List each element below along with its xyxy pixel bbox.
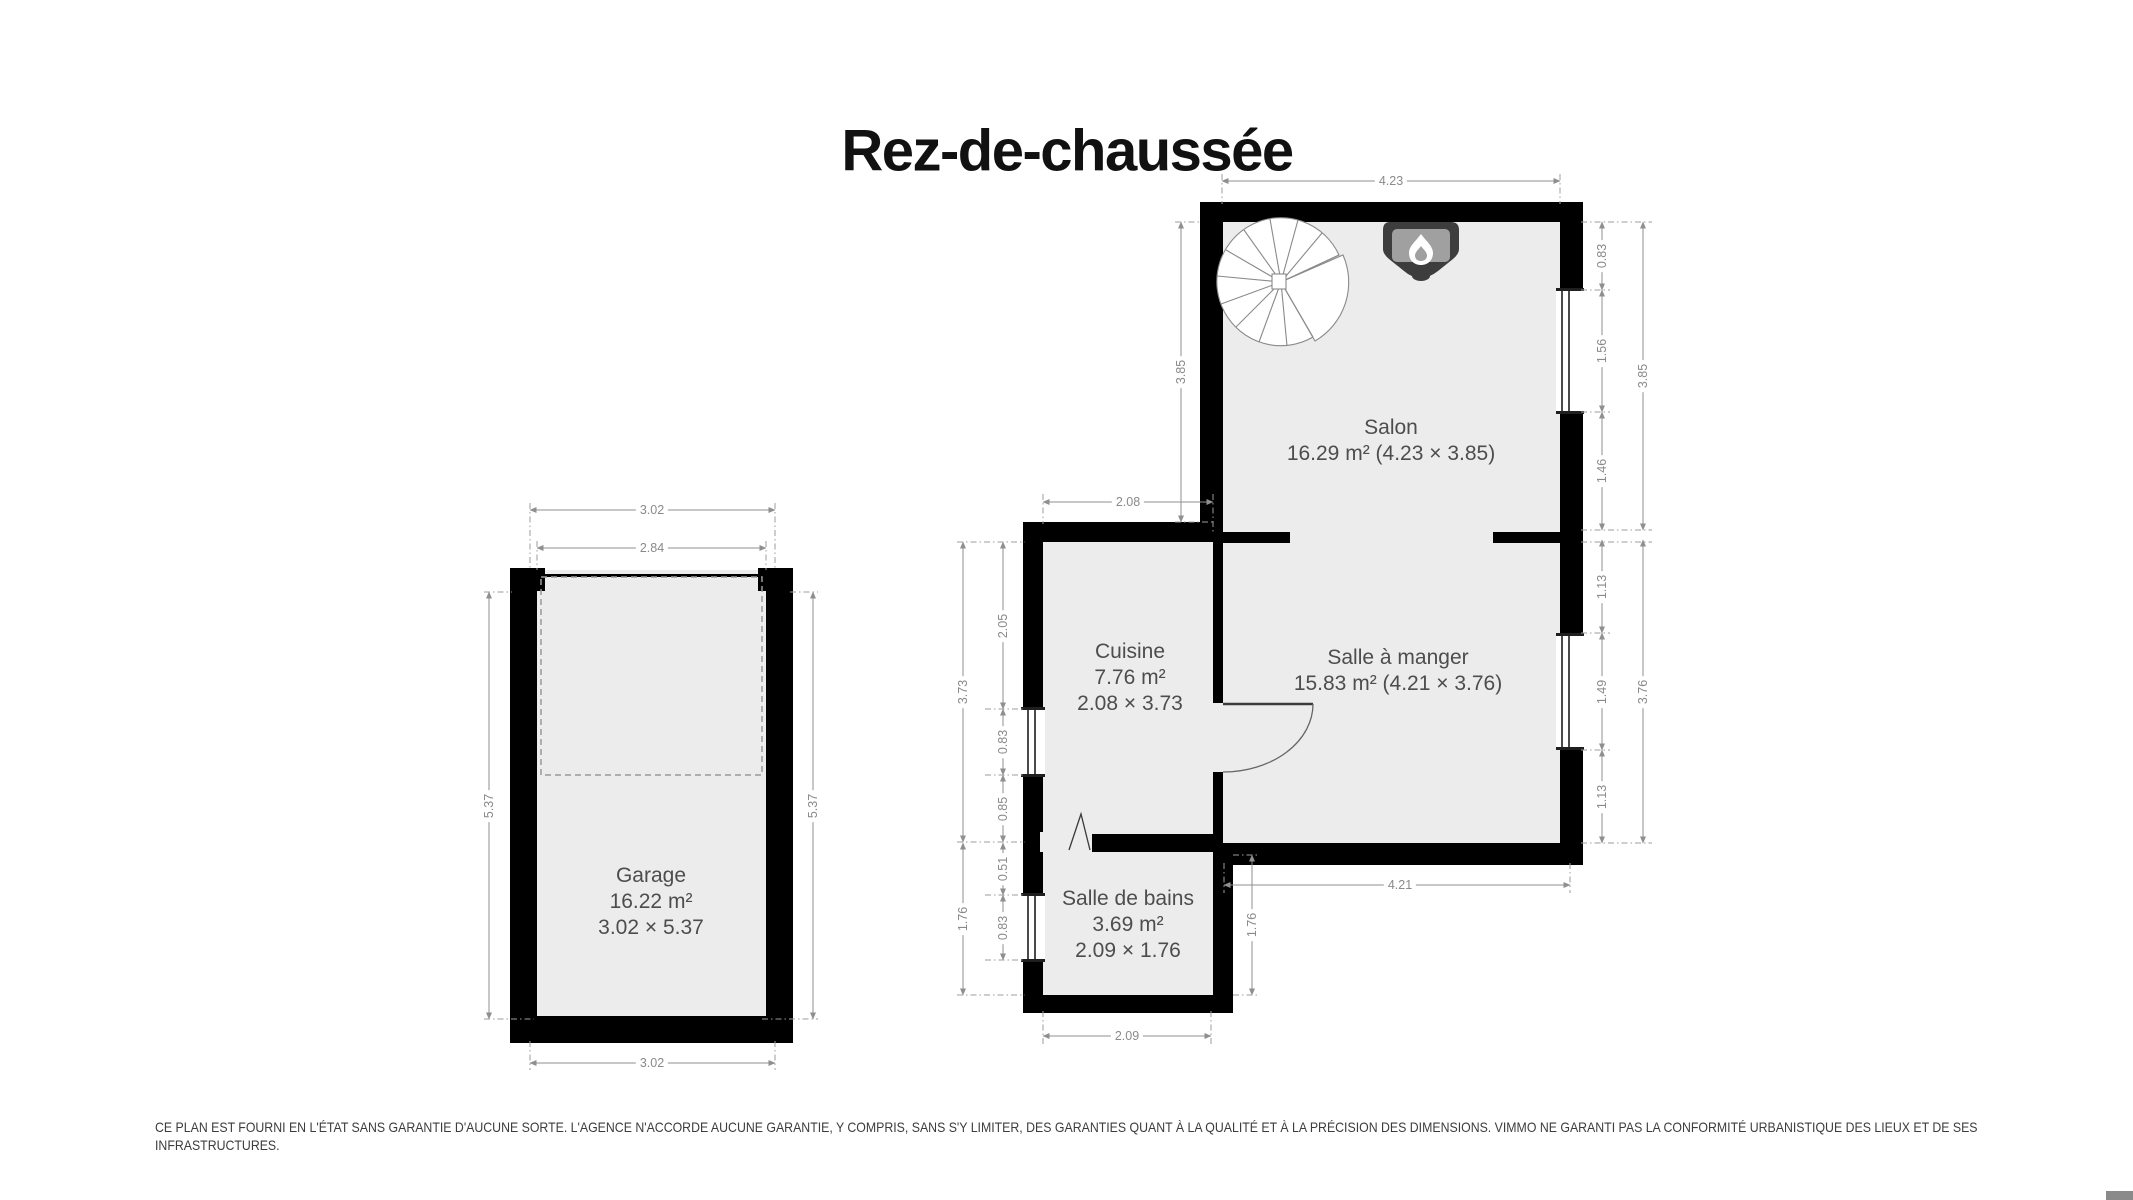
dimension-label: 5.37: [806, 790, 820, 822]
dimension-label: 0.83: [1595, 240, 1609, 272]
dimension-label: 0.51: [996, 853, 1010, 885]
dimension-label: 2.84: [636, 541, 668, 555]
dimension-label: 3.85: [1636, 360, 1650, 392]
dimension-label: 4.23: [1375, 174, 1407, 188]
room-area: 16.29 m² (4.23 × 3.85): [1287, 441, 1495, 467]
dimension-label: 2.05: [996, 610, 1010, 642]
dimension-label: 3.85: [1174, 356, 1188, 388]
room-label-garage: Garage 16.22 m² 3.02 × 5.37: [598, 863, 704, 941]
dimension-label: 0.83: [996, 726, 1010, 758]
dimension-label: 1.49: [1595, 676, 1609, 708]
dimension-label: 3.02: [636, 1056, 668, 1070]
fireplace-icon: [1383, 222, 1459, 281]
floor-plan-page: Rez-de-chaussée: [0, 0, 2133, 1200]
room-area: 3.69 m²: [1062, 912, 1194, 938]
room-label-salle-de-bains: Salle de bains 3.69 m² 2.09 × 1.76: [1062, 886, 1194, 964]
dimension-label: 3.02: [636, 503, 668, 517]
room-label-cuisine: Cuisine 7.76 m² 2.08 × 3.73: [1077, 639, 1183, 717]
dimension-label: 1.46: [1595, 455, 1609, 487]
opening-mark: [1069, 814, 1090, 850]
dimension-label: 3.73: [956, 676, 970, 708]
room-area: 15.83 m² (4.21 × 3.76): [1294, 671, 1502, 697]
dimension-label: 0.85: [996, 793, 1010, 825]
room-area: 7.76 m²: [1077, 665, 1183, 691]
dimension-label: 2.09: [1111, 1029, 1143, 1043]
dimension-label: 3.76: [1636, 676, 1650, 708]
dimension-label: 0.83: [996, 912, 1010, 944]
dimension-label: 1.76: [1245, 909, 1259, 941]
plan-graphics: [0, 0, 2133, 1200]
room-name: Garage: [598, 863, 704, 889]
dimension-label: 1.13: [1595, 781, 1609, 813]
dimension-label: 1.13: [1595, 571, 1609, 603]
disclaimer-text: CE PLAN EST FOURNI EN L'ÉTAT SANS GARANT…: [155, 1118, 1978, 1154]
dimension-label: 1.76: [956, 903, 970, 935]
scrollbar-corner: [2106, 1191, 2133, 1200]
room-label-salon: Salon 16.29 m² (4.23 × 3.85): [1287, 415, 1495, 467]
disclaimer-line: CE PLAN EST FOURNI EN L'ÉTAT SANS GARANT…: [155, 1118, 1978, 1136]
room-name: Salle à manger: [1294, 645, 1502, 671]
garage-door-swing: [541, 577, 762, 775]
spiral-staircase-icon: [1217, 218, 1349, 346]
dimension-label: 2.08: [1112, 495, 1144, 509]
room-area: 16.22 m²: [598, 889, 704, 915]
room-name: Cuisine: [1077, 639, 1183, 665]
dimension-label: 1.56: [1595, 335, 1609, 367]
dimension-label: 4.21: [1384, 878, 1416, 892]
room-name: Salon: [1287, 415, 1495, 441]
room-dims: 2.08 × 3.73: [1077, 691, 1183, 717]
room-dims: 2.09 × 1.76: [1062, 938, 1194, 964]
room-dims: 3.02 × 5.37: [598, 915, 704, 941]
dimension-label: 5.37: [482, 790, 496, 822]
disclaimer-line: INFRASTRUCTURES.: [155, 1136, 1978, 1154]
door-swing: [1223, 704, 1313, 772]
room-name: Salle de bains: [1062, 886, 1194, 912]
room-label-salle-a-manger: Salle à manger 15.83 m² (4.21 × 3.76): [1294, 645, 1502, 697]
